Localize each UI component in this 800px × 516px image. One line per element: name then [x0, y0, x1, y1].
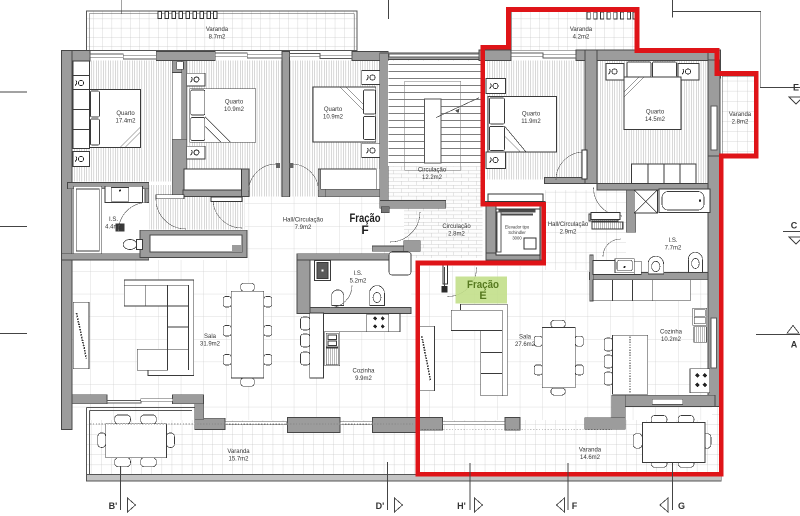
- svg-text:E: E: [793, 83, 799, 93]
- svg-text:G: G: [678, 501, 685, 511]
- svg-text:Varanda: Varanda: [729, 112, 752, 118]
- svg-text:3000: 3000: [512, 236, 522, 241]
- svg-text:15.7m2: 15.7m2: [228, 457, 249, 463]
- svg-text:H': H': [457, 501, 466, 511]
- svg-text:9.9m2: 9.9m2: [355, 376, 372, 382]
- svg-text:Circulação: Circulação: [442, 224, 471, 230]
- svg-text:C: C: [791, 221, 798, 231]
- svg-text:Varanda: Varanda: [570, 27, 593, 33]
- svg-text:I.S.: I.S.: [109, 217, 118, 223]
- svg-text:Varanda: Varanda: [206, 27, 229, 33]
- svg-text:Sala: Sala: [519, 335, 532, 341]
- svg-text:D': D': [376, 501, 385, 511]
- svg-text:10.9m2: 10.9m2: [323, 115, 344, 121]
- svg-text:Quarto: Quarto: [324, 107, 343, 113]
- svg-text:Elevador tipo: Elevador tipo: [505, 225, 530, 230]
- svg-text:31.9m2: 31.9m2: [200, 342, 221, 348]
- svg-text:Quarto: Quarto: [522, 112, 541, 118]
- svg-text:Quarto: Quarto: [225, 100, 244, 106]
- svg-text:Varanda: Varanda: [579, 448, 602, 454]
- svg-text:Quarto: Quarto: [646, 110, 665, 116]
- svg-text:F: F: [572, 501, 578, 511]
- svg-text:10.2m2: 10.2m2: [661, 337, 682, 343]
- svg-text:Cozinha: Cozinha: [660, 330, 683, 336]
- svg-text:2.9m2: 2.9m2: [560, 230, 577, 236]
- svg-text:E: E: [479, 290, 486, 302]
- svg-text:2.8m2: 2.8m2: [732, 120, 749, 126]
- svg-text:14.5m2: 14.5m2: [645, 117, 666, 123]
- svg-text:Hall/Circulação: Hall/Circulação: [548, 222, 589, 228]
- svg-text:17.4m2: 17.4m2: [115, 119, 136, 125]
- svg-text:Varanda: Varanda: [227, 449, 250, 455]
- svg-text:Quarto: Quarto: [116, 111, 135, 117]
- svg-text:4.2m2: 4.2m2: [573, 35, 590, 41]
- svg-text:F: F: [361, 223, 368, 237]
- svg-text:7.7m2: 7.7m2: [665, 246, 682, 252]
- svg-text:Circulação: Circulação: [418, 168, 447, 174]
- svg-text:10.9m2: 10.9m2: [224, 107, 245, 113]
- svg-text:27.6m2: 27.6m2: [515, 342, 536, 348]
- svg-text:Hall/Circulação: Hall/Circulação: [283, 218, 324, 224]
- svg-text:4.4m2: 4.4m2: [105, 225, 122, 231]
- svg-text:8.7m2: 8.7m2: [209, 35, 226, 41]
- svg-text:Cozinha: Cozinha: [352, 369, 375, 375]
- svg-text:Sala: Sala: [204, 334, 217, 340]
- svg-text:7.9m2: 7.9m2: [295, 225, 312, 231]
- svg-text:A: A: [791, 340, 798, 350]
- svg-text:5.2m2: 5.2m2: [350, 279, 367, 285]
- svg-text:B': B': [109, 501, 118, 511]
- svg-text:2.8m2: 2.8m2: [448, 232, 465, 238]
- svg-text:I.S.: I.S.: [668, 238, 677, 244]
- svg-text:11.9m2: 11.9m2: [521, 119, 541, 125]
- svg-text:12.2m2: 12.2m2: [422, 175, 443, 181]
- svg-text:Schindler: Schindler: [508, 230, 526, 235]
- svg-text:14.6m2: 14.6m2: [580, 455, 601, 461]
- svg-text:I.S.: I.S.: [353, 271, 362, 277]
